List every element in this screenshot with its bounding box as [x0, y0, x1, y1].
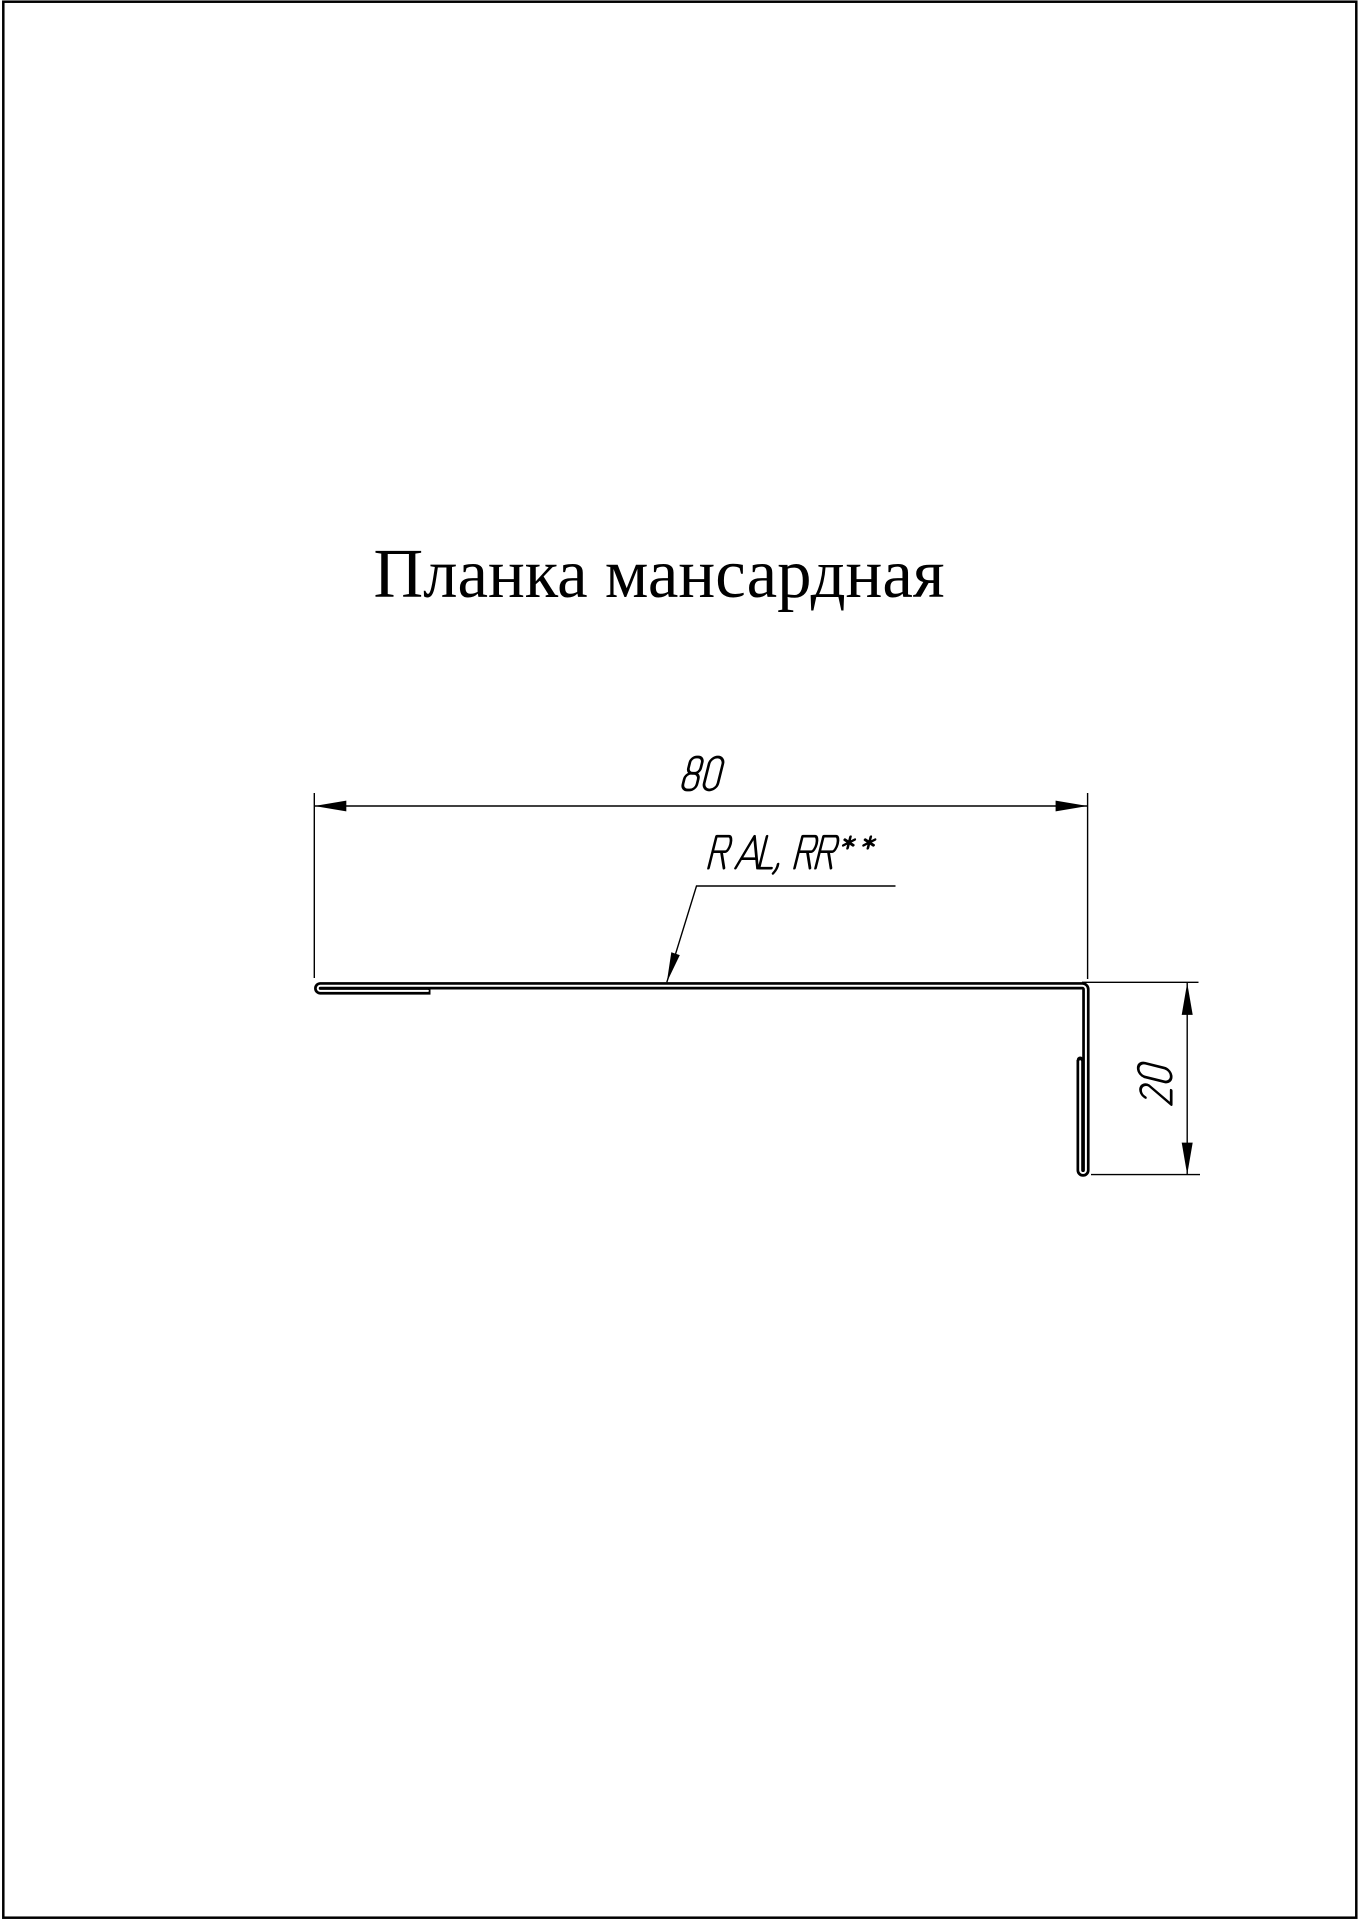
svg-text:Планка мансардная: Планка мансардная — [374, 536, 945, 613]
